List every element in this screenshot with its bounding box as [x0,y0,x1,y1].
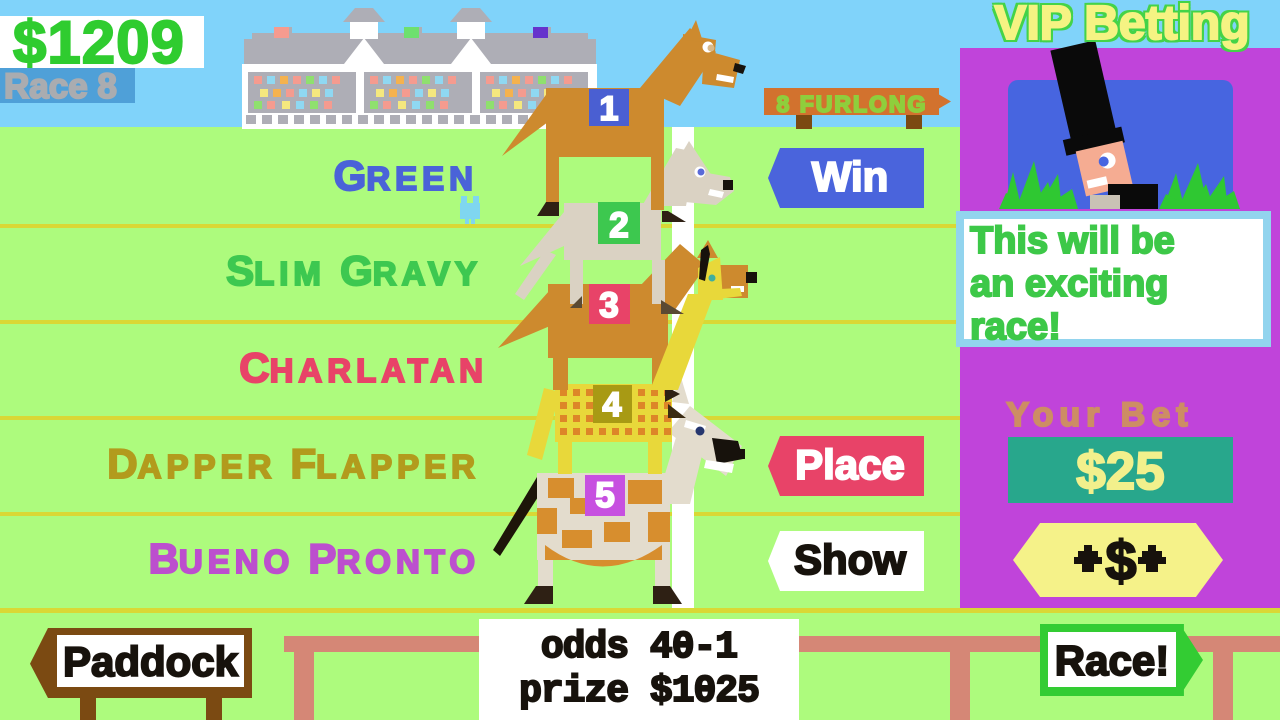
svg-text:1: 1 [600,90,619,128]
svg-text:5: 5 [595,476,614,515]
svg-text:4: 4 [603,386,622,424]
svg-text:2: 2 [609,206,628,245]
svg-text:$: $ [1105,529,1136,592]
svg-text:3: 3 [599,286,618,325]
